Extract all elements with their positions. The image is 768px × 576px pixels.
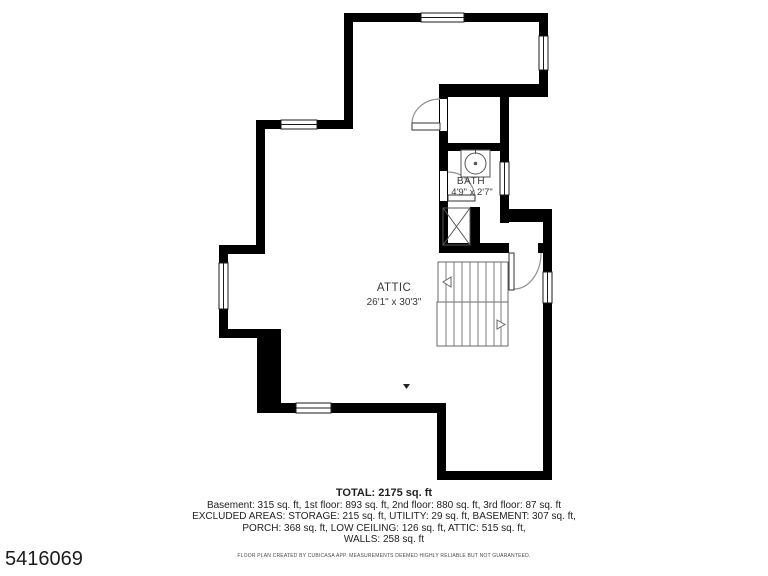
window-icon <box>219 263 228 309</box>
window-icon <box>543 272 552 303</box>
room-dims-attic: 26'1" x 30'3" <box>367 297 422 308</box>
room-label-attic: ATTIC <box>377 282 411 294</box>
stair-treads <box>446 262 501 346</box>
door-icon <box>412 99 447 131</box>
window-icon <box>296 403 331 413</box>
door-icon <box>509 253 541 290</box>
north-marker-icon <box>403 384 410 389</box>
listing-id: 5416069 <box>5 548 83 571</box>
walls <box>219 13 552 480</box>
summary-line-floors: Basement: 315 sq. ft, 1st floor: 893 sq.… <box>0 500 768 511</box>
window-icon <box>500 162 509 195</box>
window-icon <box>281 120 317 129</box>
total-area-text: TOTAL: 2175 sq. ft <box>0 487 768 499</box>
summary-line-excluded-2: PORCH: 368 sq. ft, LOW CEILING: 126 sq. … <box>0 523 768 534</box>
staircase <box>437 262 508 346</box>
stair-direction-arrow <box>443 277 451 287</box>
room-label-bath: BATH <box>457 176 485 187</box>
disclaimer-text: FLOOR PLAN CREATED BY CUBICASA APP. MEAS… <box>0 553 768 559</box>
sink-icon <box>461 150 490 177</box>
window-icon <box>539 36 548 70</box>
floor-plan-page: ATTIC 26'1" x 30'3" BATH 4'9" x 2'7" TOT… <box>0 0 768 576</box>
summary-line-walls: WALLS: 258 sq. ft <box>0 534 768 545</box>
area-summary: TOTAL: 2175 sq. ft Basement: 315 sq. ft,… <box>0 487 768 559</box>
room-dims-bath: 4'9" x 2'7" <box>451 187 493 198</box>
window-icon <box>421 13 464 22</box>
summary-line-excluded-1: EXCLUDED AREAS: STORAGE: 215 sq. ft, UTI… <box>0 511 768 522</box>
